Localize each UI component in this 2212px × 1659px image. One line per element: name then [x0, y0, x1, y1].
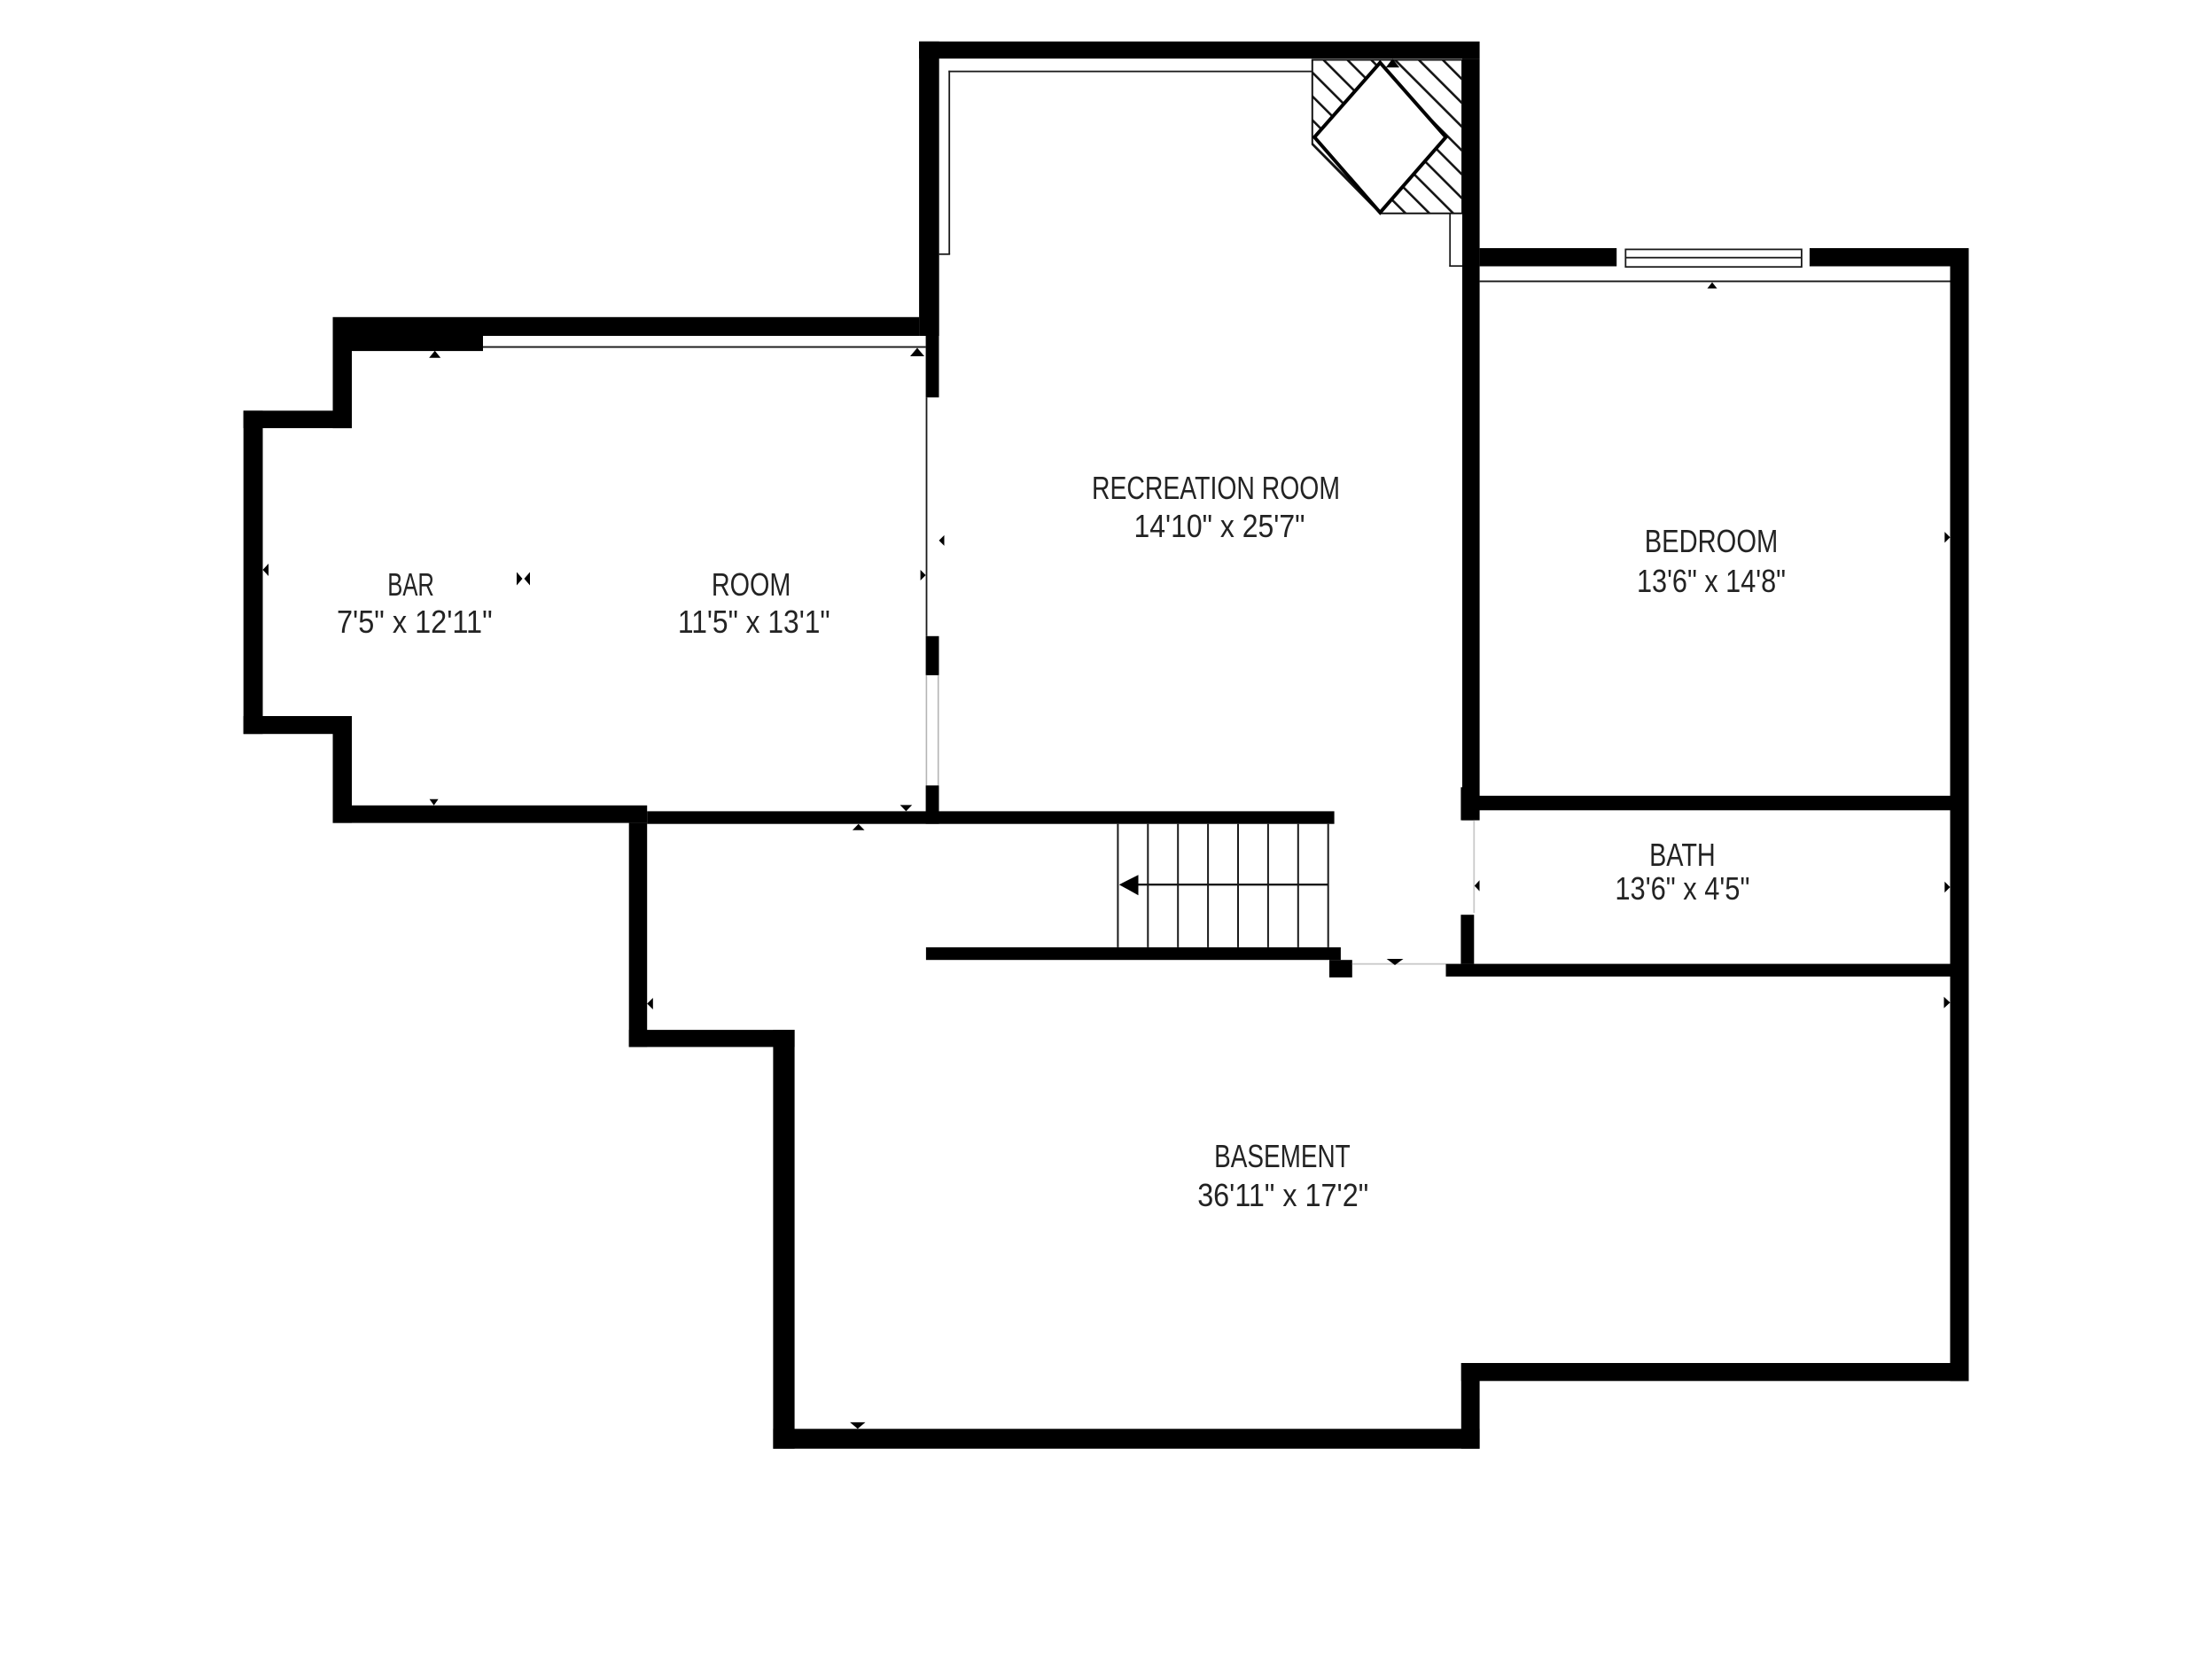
svg-text:11'5" x 13'1": 11'5" x 13'1" — [678, 604, 830, 640]
svg-text:36'11" x 17'2": 36'11" x 17'2" — [1197, 1177, 1368, 1213]
svg-text:7'5" x 12'11": 7'5" x 12'11" — [337, 604, 493, 640]
svg-text:14'10" x 25'7": 14'10" x 25'7" — [1134, 508, 1305, 544]
svg-text:BEDROOM: BEDROOM — [1645, 523, 1779, 559]
svg-text:BATH: BATH — [1649, 837, 1716, 873]
svg-text:13'6" x 14'8": 13'6" x 14'8" — [1637, 563, 1786, 599]
svg-text:BAR: BAR — [387, 566, 434, 603]
svg-text:13'6" x 4'5": 13'6" x 4'5" — [1615, 870, 1749, 907]
svg-text:RECREATION ROOM: RECREATION ROOM — [1092, 470, 1340, 506]
svg-text:ROOM: ROOM — [712, 566, 791, 603]
svg-text:BASEMENT: BASEMENT — [1214, 1138, 1351, 1174]
